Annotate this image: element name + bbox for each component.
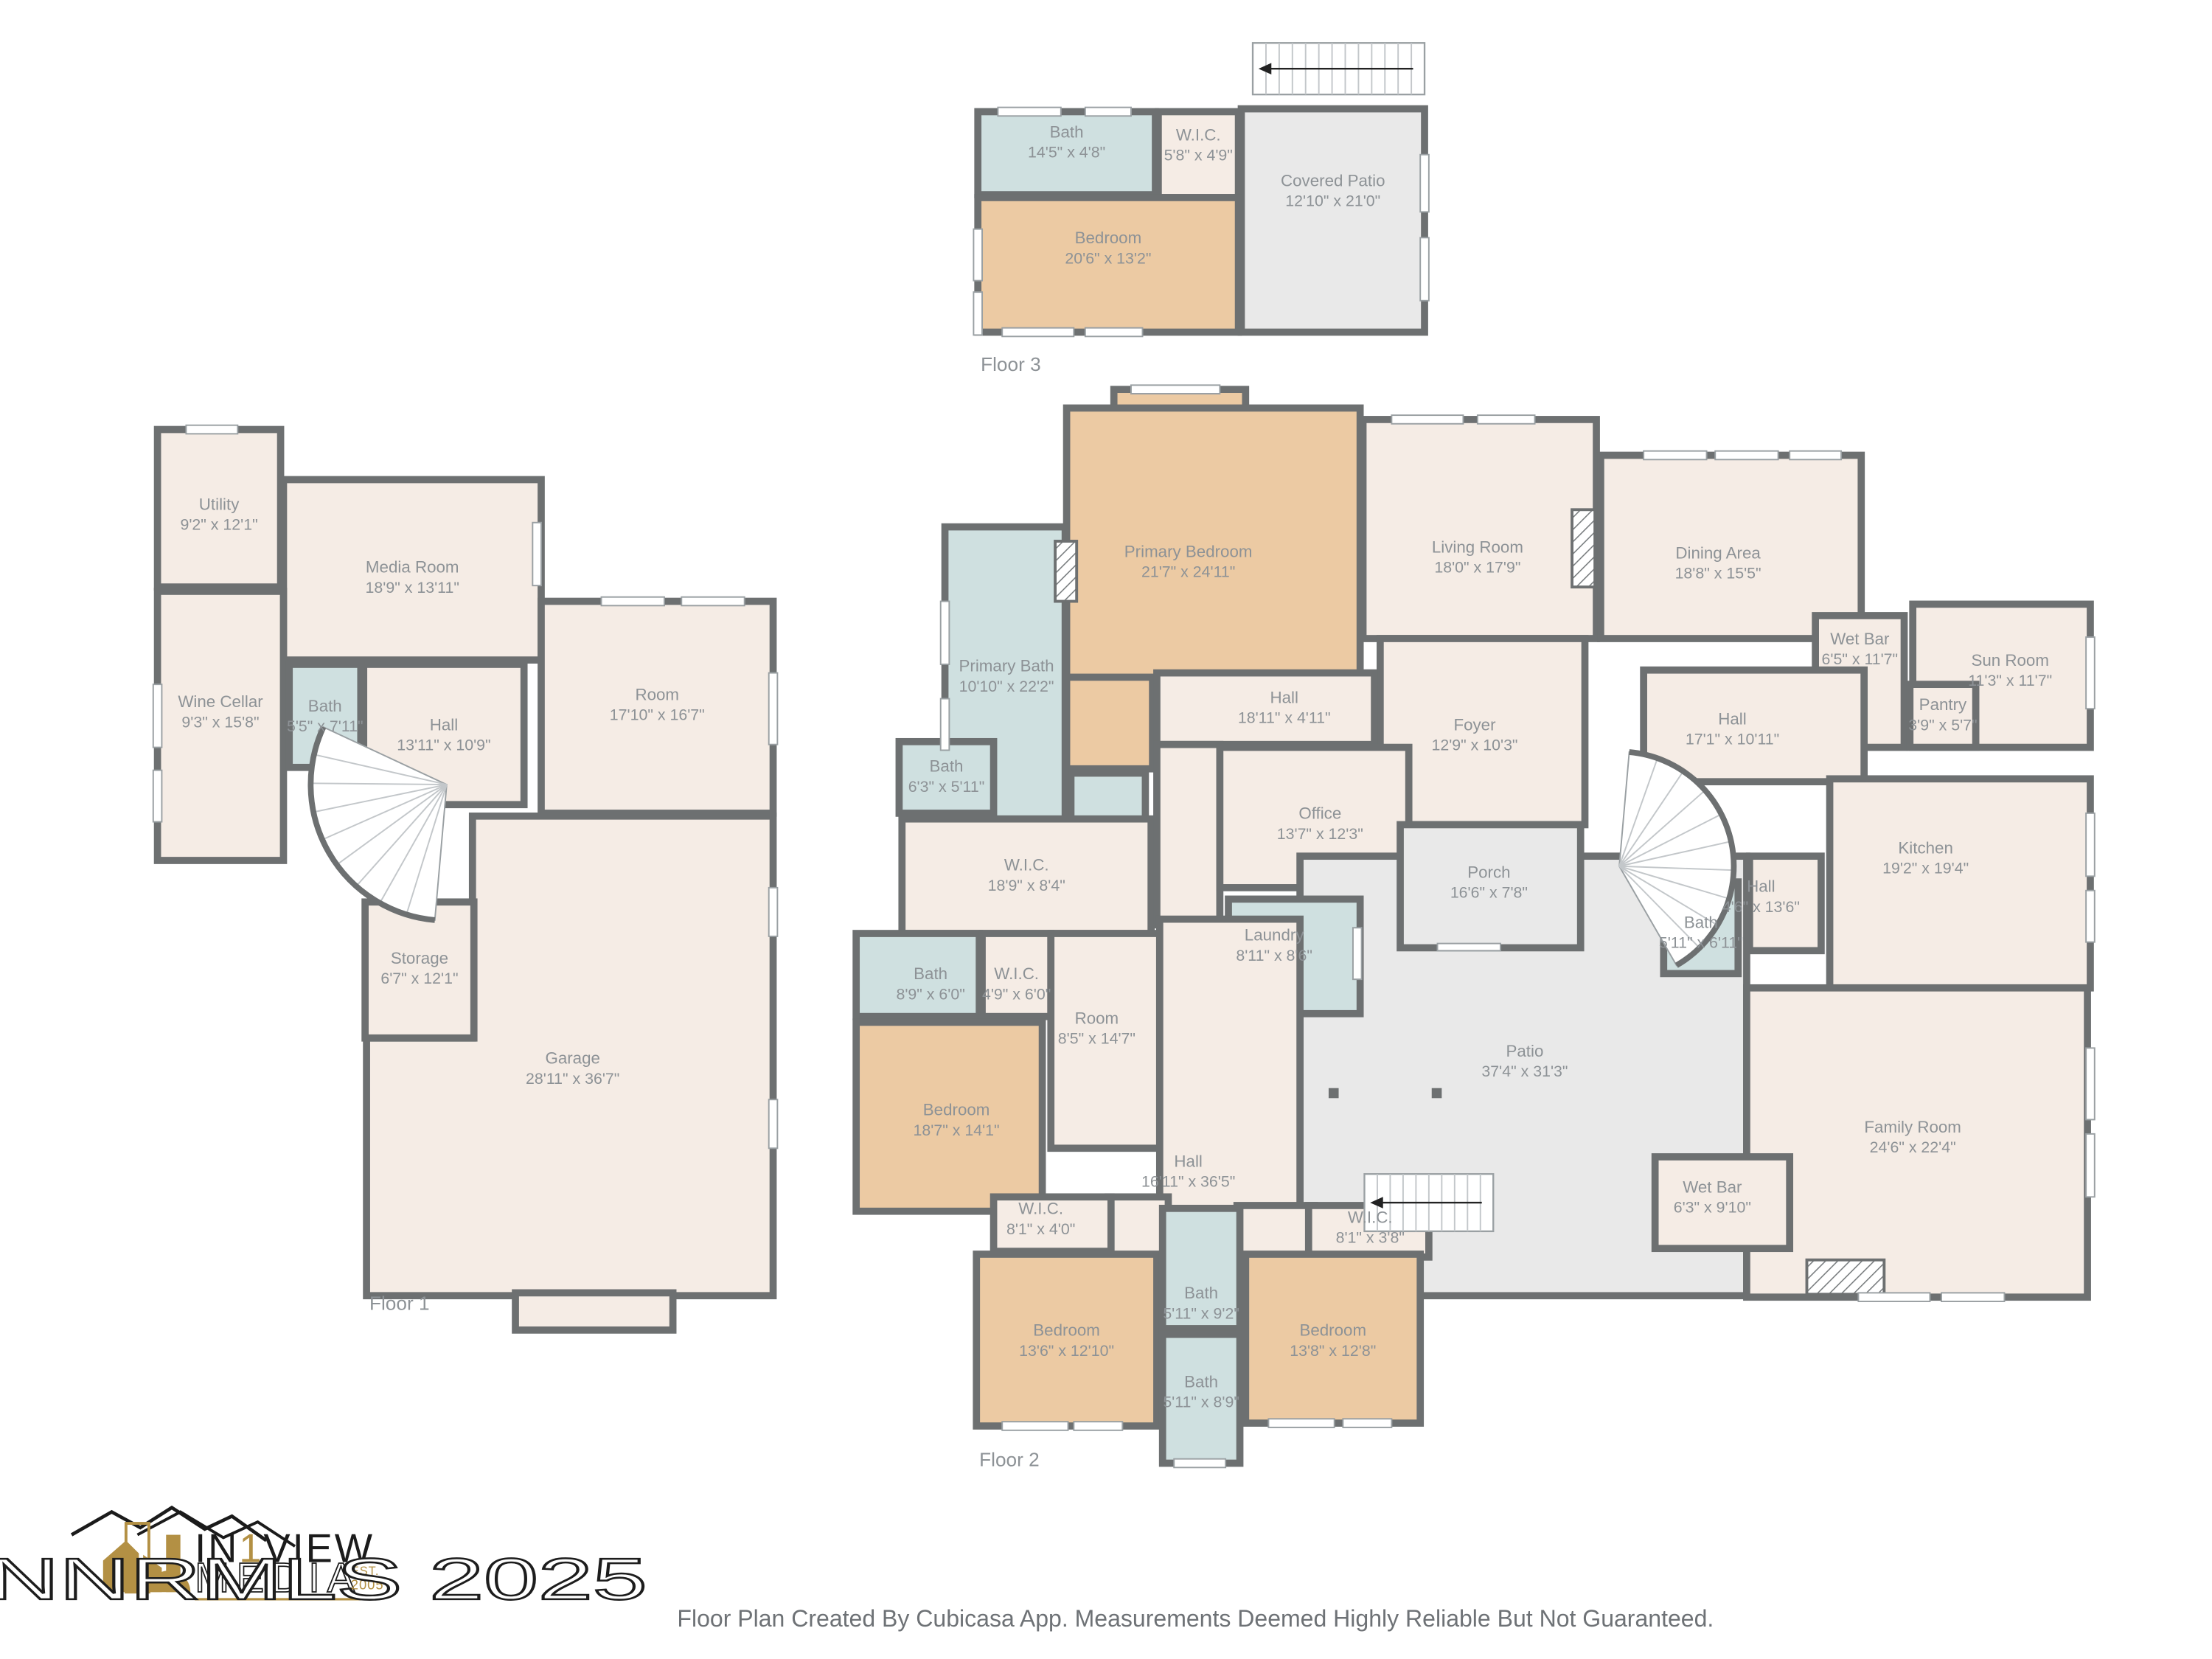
room-dims: 24'6" x 22'4" [1870,1138,1956,1156]
floor-label: Floor 2 [979,1448,1040,1470]
room-dims: 17'1" x 10'11" [1686,731,1779,748]
room-label: Hall [1270,688,1298,706]
room-primary-bedroom-nook [1067,677,1153,768]
room-dims: 6'3" x 5'11" [908,778,985,796]
room-label: W.I.C. [1176,125,1221,144]
floorplan-canvas: Covered Patio12'10" x 21'0"Bath14'5" x 4… [0,0,2212,1659]
room-covered-patio [1241,109,1425,333]
window [1002,1422,1068,1430]
window [1131,385,1220,394]
window [153,771,162,822]
room-dims: 13'6" x 12'10" [1019,1342,1114,1360]
room-label: Pantry [1919,695,1967,714]
room-label: Patio [1506,1042,1544,1060]
room-label: Bedroom [923,1101,990,1119]
window [1353,928,1362,979]
room-label: Wine Cellar [178,692,263,711]
room-label: Garage [545,1049,599,1068]
room-label: Porch [1467,863,1510,881]
window [941,602,950,664]
room-label: Primary Bath [959,657,1054,675]
room-label: Bedroom [1033,1321,1100,1340]
window [1790,451,1841,460]
room-dims: 12'9" x 10'3" [1431,736,1517,754]
room-hall-connector [1157,745,1220,925]
room-dims: 5'5" x 7'11" [287,717,364,735]
staircase [1253,43,1425,94]
room-dims: 6'5" x 11'7" [1822,650,1899,668]
room-dims: 5'8" x 4'9" [1164,146,1233,164]
floor-1 [158,430,773,1330]
window [1478,415,1535,424]
fireplace [1806,1260,1884,1295]
patio-post [1432,1088,1442,1099]
window [1343,1419,1391,1427]
window [153,684,162,747]
room-dims: 13'11" x 10'9" [397,736,490,754]
floor-label: Floor 1 [369,1293,430,1315]
room-label: Hall [1174,1152,1202,1171]
window [1002,328,1074,337]
room-dims: 5'11" x 8'9" [1163,1394,1239,1411]
fireplace [1572,509,1595,587]
room-label: Bath [914,964,947,983]
window [1268,1419,1334,1427]
room-dims: 18'7" x 14'1" [914,1121,1000,1139]
room-label: W.I.C. [994,964,1039,983]
room-dims: 18'11" x 4'11" [1238,709,1331,727]
room-dims: 8'11" x 8'6" [1236,947,1312,964]
room-dims: 8'1" x 3'8" [1336,1228,1405,1246]
room-label: W.I.C. [1018,1200,1063,1218]
room-dims: 21'7" x 24'11" [1141,563,1235,581]
room-dims: 4'6" x 13'6" [1722,898,1800,916]
window [1941,1293,2004,1301]
room-label: Bath [308,697,342,715]
room-dims: 18'8" x 15'5" [1675,564,1761,582]
room-dims: 17'10" x 16'7" [610,706,705,724]
room-dims: 18'0" x 17'9" [1434,559,1520,577]
room-dims: 5'11" x 6'11" [1659,933,1743,951]
window [2086,1048,2095,1119]
room-kitchen [1830,779,2090,987]
floor-label: Floor 3 [981,353,1041,375]
rooms-layer [158,109,2090,1464]
room-label: W.I.C. [1348,1208,1393,1226]
window [1074,1422,1122,1430]
room-dims: 14'5" x 4'8" [1028,144,1105,161]
room-dims: 6'7" x 12'1" [380,970,458,987]
window [769,888,778,936]
window [998,108,1060,116]
room-label: Hall [1718,710,1746,728]
room-dims: 18'9" x 13'11" [366,579,459,597]
room-garage-bay [515,1293,673,1329]
room-label: Hall [1747,877,1775,896]
window [941,699,950,751]
room-dims: 19'2" x 19'4" [1882,859,1969,877]
footer-disclaimer: Floor Plan Created By Cubicasa App. Meas… [677,1605,1714,1632]
mls-watermark: NNRMLS 2025 [0,1546,647,1612]
window [186,425,237,434]
room-dims: 9'3" x 15'8" [181,713,259,731]
room-dims: 13'7" x 12'3" [1277,825,1363,843]
window [1858,1293,1930,1301]
patio-post [1329,1088,1339,1099]
room-dims: 13'8" x 12'8" [1290,1342,1376,1360]
room-bedroom-136 [976,1254,1157,1426]
room-dims: 10'10" x 22'2" [959,678,1054,695]
room-dims: 37'4" x 31'3" [1481,1062,1568,1080]
room-label: Office [1298,804,1341,823]
window [973,229,982,281]
room-dims: 8'9" x 6'0" [896,985,964,1003]
room-label: Foyer [1453,715,1496,734]
room-label: Utility [199,495,240,513]
room-label: Bedroom [1075,229,1142,247]
room-dims: 16'11" x 36'5" [1141,1173,1235,1191]
window [1715,451,1778,460]
window [2086,637,2095,709]
room-label: Laundry [1245,926,1305,945]
room-label: Wet Bar [1683,1178,1742,1196]
window [1085,328,1143,337]
window [1420,155,1429,212]
room-label: Room [1075,1009,1119,1027]
room-dims: 4'9" x 6'0" [982,985,1051,1003]
room-label: Kitchen [1898,838,1952,857]
window [769,1099,778,1148]
window [2086,1134,2095,1197]
room-label: W.I.C. [1004,856,1049,874]
window [602,597,664,606]
room-dims: 3'9" x 5'7" [1908,716,1977,734]
window [1174,1459,1225,1468]
room-label: Sun Room [1971,651,2048,669]
window [532,523,541,585]
room-dims: 6'3" x 9'10" [1674,1199,1751,1217]
window [1644,451,1706,460]
room-label: Bath [1684,913,1718,931]
room-label: Storage [391,949,448,967]
room-label: Living Room [1432,538,1523,557]
floorplan-page: Covered Patio12'10" x 21'0"Bath14'5" x 4… [0,0,2212,1659]
room-dims: 8'1" x 4'0" [1006,1220,1075,1238]
window [1391,415,1463,424]
room-dims: 5'11" x 9'2" [1163,1304,1239,1322]
room-dims: 20'6" x 13'2" [1065,249,1151,267]
room-label: Media Room [366,558,459,577]
room-dims: 9'2" x 12'1" [180,515,257,533]
window [973,292,982,335]
window [1420,237,1429,300]
room-dims: 11'3" x 11'7" [1968,672,2052,689]
window [1085,108,1131,116]
fireplace [1055,541,1077,602]
window [2086,891,2095,942]
room-label: Family Room [1864,1118,1961,1136]
room-living-room [1363,420,1597,639]
room-label: Primary Bedroom [1124,542,1253,560]
window [1438,944,1500,951]
room-label: Room [635,686,679,704]
room-label: Wet Bar [1830,630,1890,648]
room-dims: 8'5" x 14'7" [1058,1030,1135,1048]
room-label: Bath [1184,1373,1218,1391]
room-label: Bath [1184,1284,1218,1302]
room-label: Dining Area [1675,543,1761,562]
room-dims: 12'10" x 21'0" [1285,192,1380,210]
window [2086,813,2095,876]
window [681,597,744,606]
room-label: Bath [1050,122,1084,141]
room-label: Covered Patio [1281,171,1385,189]
room-label: Bedroom [1299,1321,1366,1340]
room-dims: 18'9" x 8'4" [988,877,1065,894]
room-dims: 16'6" x 7'8" [1450,883,1528,901]
room-label: Bath [930,757,964,776]
window [769,673,778,745]
room-dims: 28'11" x 36'7" [526,1070,619,1088]
room-label: Hall [430,715,458,734]
